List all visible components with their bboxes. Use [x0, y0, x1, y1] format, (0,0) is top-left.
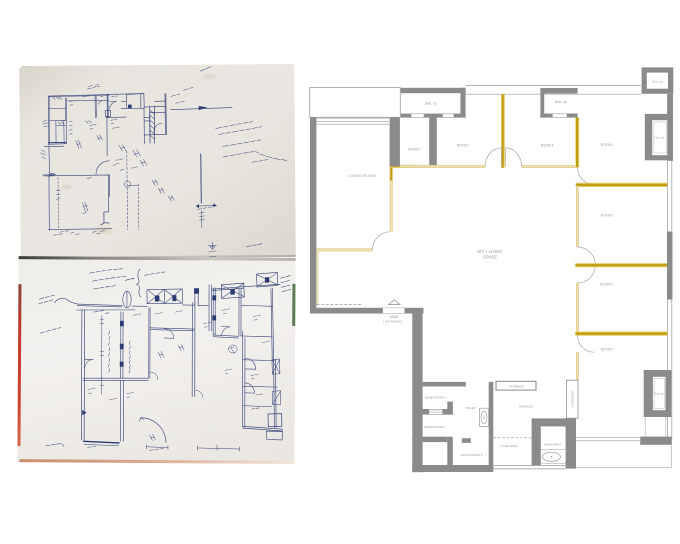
svg-text:LIVING ROOM: LIVING ROOM [348, 174, 376, 178]
svg-text:TOILET: TOILET [465, 406, 476, 410]
svg-text:ROOM 1: ROOM 1 [408, 148, 421, 152]
svg-text:Duct up: Duct up [655, 136, 665, 140]
svg-text:Balc. up: Balc. up [555, 100, 567, 104]
svg-text:[ ENTRANCE ]: [ ENTRANCE ] [383, 319, 403, 323]
svg-text:WASH ROOM 3: WASH ROOM 3 [461, 453, 483, 457]
svg-text:WASH AREA: WASH AREA [544, 443, 561, 447]
svg-text:Balc. up: Balc. up [425, 102, 437, 106]
svg-text:SPACE: SPACE [483, 254, 497, 259]
svg-text:STORAGE: STORAGE [509, 384, 524, 388]
svg-text:WASH ROOM 2: WASH ROOM 2 [424, 425, 446, 429]
svg-text:ROOM 4: ROOM 4 [601, 143, 614, 147]
svg-text:CUPBOARD: CUPBOARD [571, 391, 575, 407]
svg-text:ROOM 2: ROOM 2 [457, 144, 470, 148]
svg-text:ROOM 7: ROOM 7 [601, 348, 614, 352]
svg-text:Duct up: Duct up [653, 80, 663, 84]
svg-text:WASH ROOM 1: WASH ROOM 1 [425, 396, 447, 400]
svg-text:ROOM 6: ROOM 6 [600, 283, 613, 287]
svg-text:Duct up: Duct up [654, 392, 664, 396]
svg-text:PASSAGE: PASSAGE [519, 405, 533, 409]
svg-text:ROOM 3: ROOM 3 [541, 144, 554, 148]
svg-text:5 TILE AREA: 5 TILE AREA [501, 444, 518, 448]
svg-text:ROOM 5: ROOM 5 [601, 214, 614, 218]
